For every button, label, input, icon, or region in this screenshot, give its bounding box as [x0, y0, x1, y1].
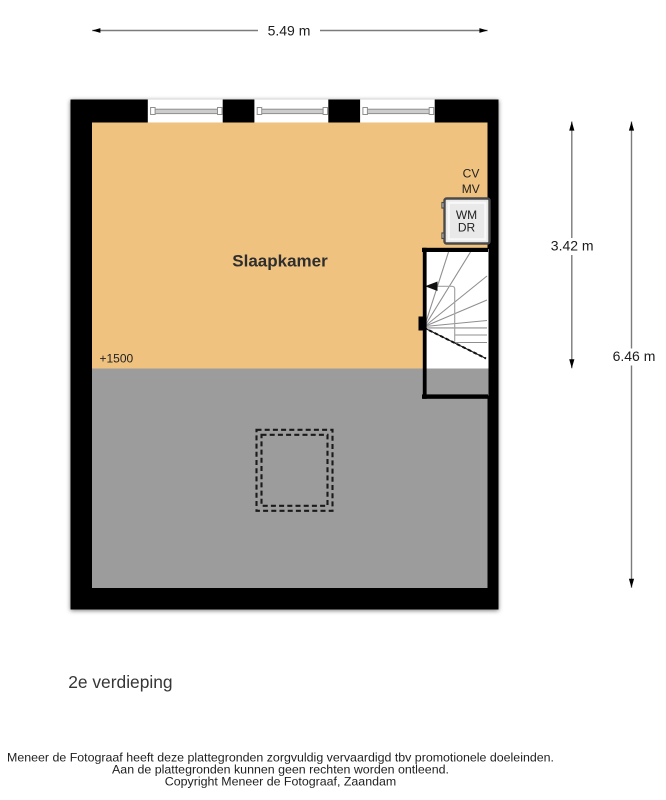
svg-text:DR: DR: [458, 221, 476, 235]
svg-text:5.49 m: 5.49 m: [268, 23, 311, 39]
svg-text:Copyright Meneer de Fotograaf,: Copyright Meneer de Fotograaf, Zaandam: [165, 775, 396, 789]
svg-text:2e verdieping: 2e verdieping: [68, 672, 172, 692]
svg-text:3.42 m: 3.42 m: [551, 238, 594, 254]
svg-text:+1500: +1500: [100, 352, 134, 366]
svg-text:MV: MV: [462, 182, 480, 196]
svg-text:Slaapkamer: Slaapkamer: [232, 252, 328, 271]
svg-text:CV: CV: [463, 166, 480, 180]
svg-text:6.46 m: 6.46 m: [613, 348, 656, 364]
